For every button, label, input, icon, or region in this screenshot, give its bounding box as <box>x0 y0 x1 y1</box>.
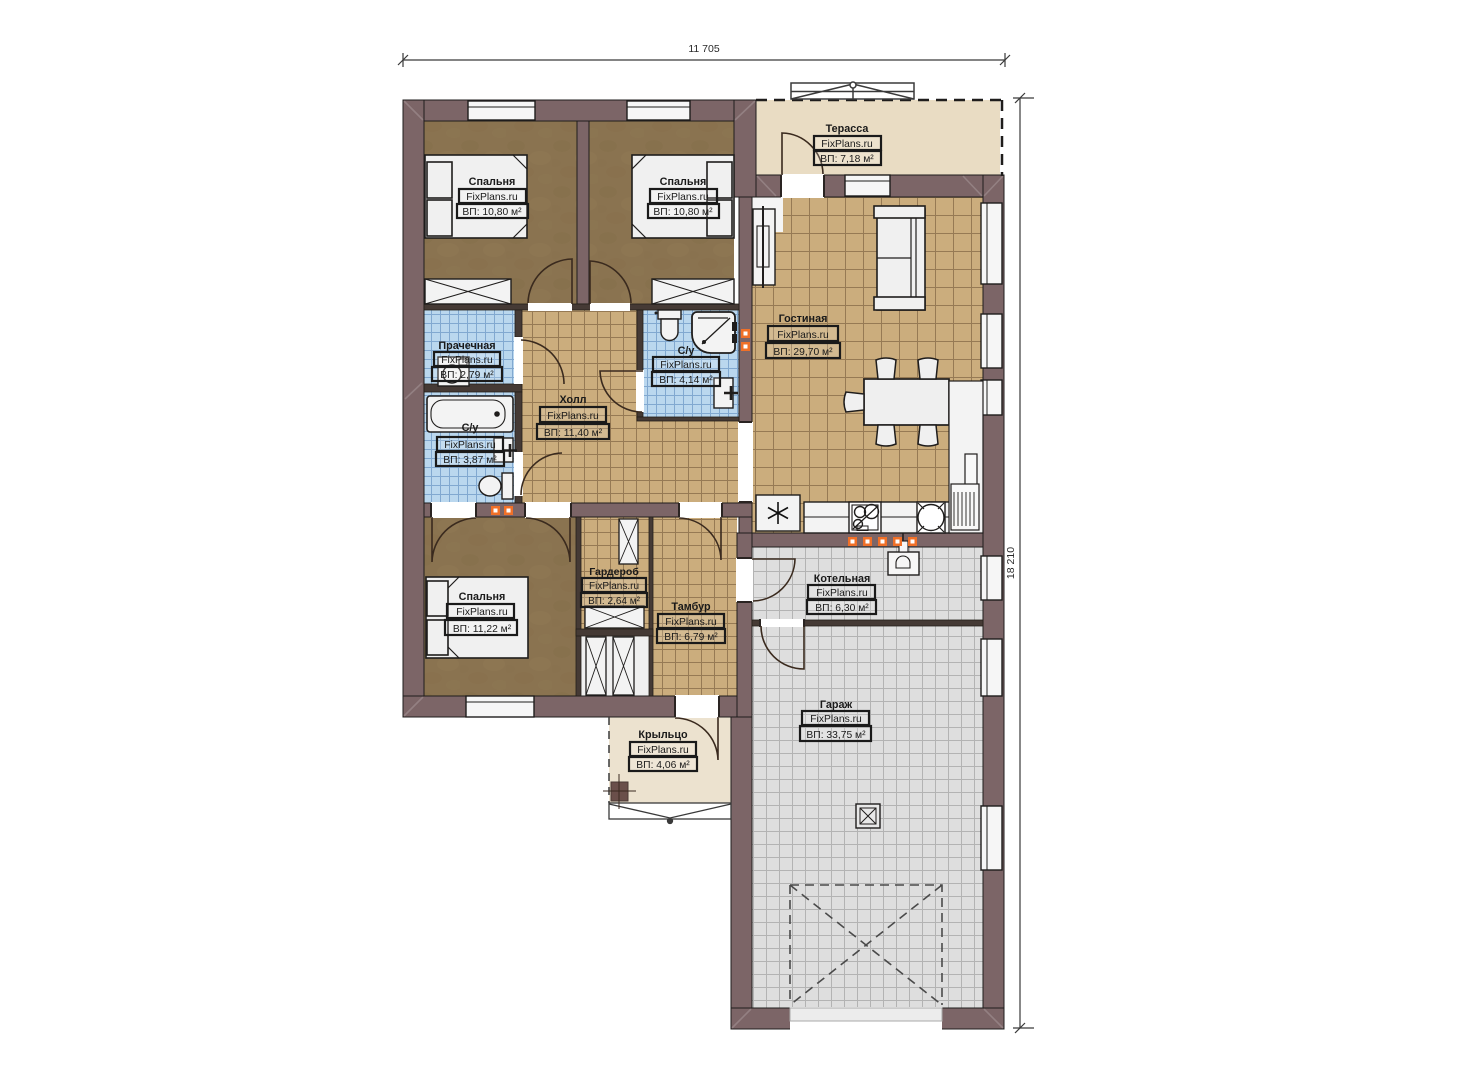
svg-text:Гостиная: Гостиная <box>779 313 828 325</box>
svg-text:11 705: 11 705 <box>688 43 719 55</box>
svg-text:FixPlans.ru: FixPlans.ru <box>589 581 639 592</box>
svg-text:Спальня: Спальня <box>459 591 506 603</box>
svg-text:ВП: 4,06 м²: ВП: 4,06 м² <box>636 760 690 771</box>
svg-text:ВП: 11,40 м²: ВП: 11,40 м² <box>544 428 603 439</box>
svg-text:FixPlans.ru: FixPlans.ru <box>466 192 518 203</box>
svg-text:ВП: 7,18 м²: ВП: 7,18 м² <box>820 154 874 165</box>
svg-text:Котельная: Котельная <box>814 573 871 585</box>
svg-text:Спальня: Спальня <box>660 176 707 188</box>
svg-text:ВП: 29,70 м²: ВП: 29,70 м² <box>773 347 833 358</box>
svg-text:ВП: 2,79 м²: ВП: 2,79 м² <box>440 370 494 381</box>
svg-text:Гардероб: Гардероб <box>589 566 639 578</box>
svg-text:Спальня: Спальня <box>469 176 516 188</box>
svg-text:FixPlans.ru: FixPlans.ru <box>665 617 717 628</box>
svg-text:FixPlans.ru: FixPlans.ru <box>547 411 599 422</box>
svg-text:FixPlans.ru: FixPlans.ru <box>821 139 873 150</box>
svg-text:ВП: 2,64 м²: ВП: 2,64 м² <box>588 596 641 607</box>
svg-text:Терасса: Терасса <box>826 123 870 135</box>
svg-text:Прачечная: Прачечная <box>438 340 495 352</box>
svg-text:FixPlans.ru: FixPlans.ru <box>441 355 493 366</box>
svg-text:FixPlans.ru: FixPlans.ru <box>810 714 862 725</box>
svg-text:ВП: 33,75 м²: ВП: 33,75 м² <box>806 730 866 741</box>
svg-text:FixPlans.ru: FixPlans.ru <box>777 330 829 341</box>
svg-text:Тамбур: Тамбур <box>671 601 711 613</box>
svg-text:С/у: С/у <box>462 422 479 434</box>
svg-text:FixPlans.ru: FixPlans.ru <box>456 607 508 618</box>
svg-text:ВП: 3,87 м²: ВП: 3,87 м² <box>443 455 497 466</box>
svg-text:FixPlans.ru: FixPlans.ru <box>444 440 496 451</box>
svg-text:FixPlans.ru: FixPlans.ru <box>816 588 868 599</box>
svg-text:FixPlans.ru: FixPlans.ru <box>637 745 689 756</box>
svg-text:FixPlans.ru: FixPlans.ru <box>657 192 709 203</box>
svg-text:ВП: 10,80 м²: ВП: 10,80 м² <box>462 207 522 218</box>
svg-text:ВП: 11,22 м²: ВП: 11,22 м² <box>453 624 512 635</box>
svg-text:ВП: 6,30 м²: ВП: 6,30 м² <box>815 603 869 614</box>
svg-text:ВП: 4,14 м²: ВП: 4,14 м² <box>659 375 713 386</box>
svg-text:Холл: Холл <box>559 394 586 406</box>
svg-text:ВП: 6,79 м²: ВП: 6,79 м² <box>664 632 718 643</box>
svg-text:С/у: С/у <box>678 345 695 357</box>
svg-text:Крыльцо: Крыльцо <box>638 729 688 741</box>
svg-text:FixPlans.ru: FixPlans.ru <box>660 360 712 371</box>
svg-text:18 210: 18 210 <box>1005 547 1017 579</box>
svg-text:ВП: 10,80 м²: ВП: 10,80 м² <box>653 207 713 218</box>
svg-text:Гараж: Гараж <box>820 699 853 711</box>
